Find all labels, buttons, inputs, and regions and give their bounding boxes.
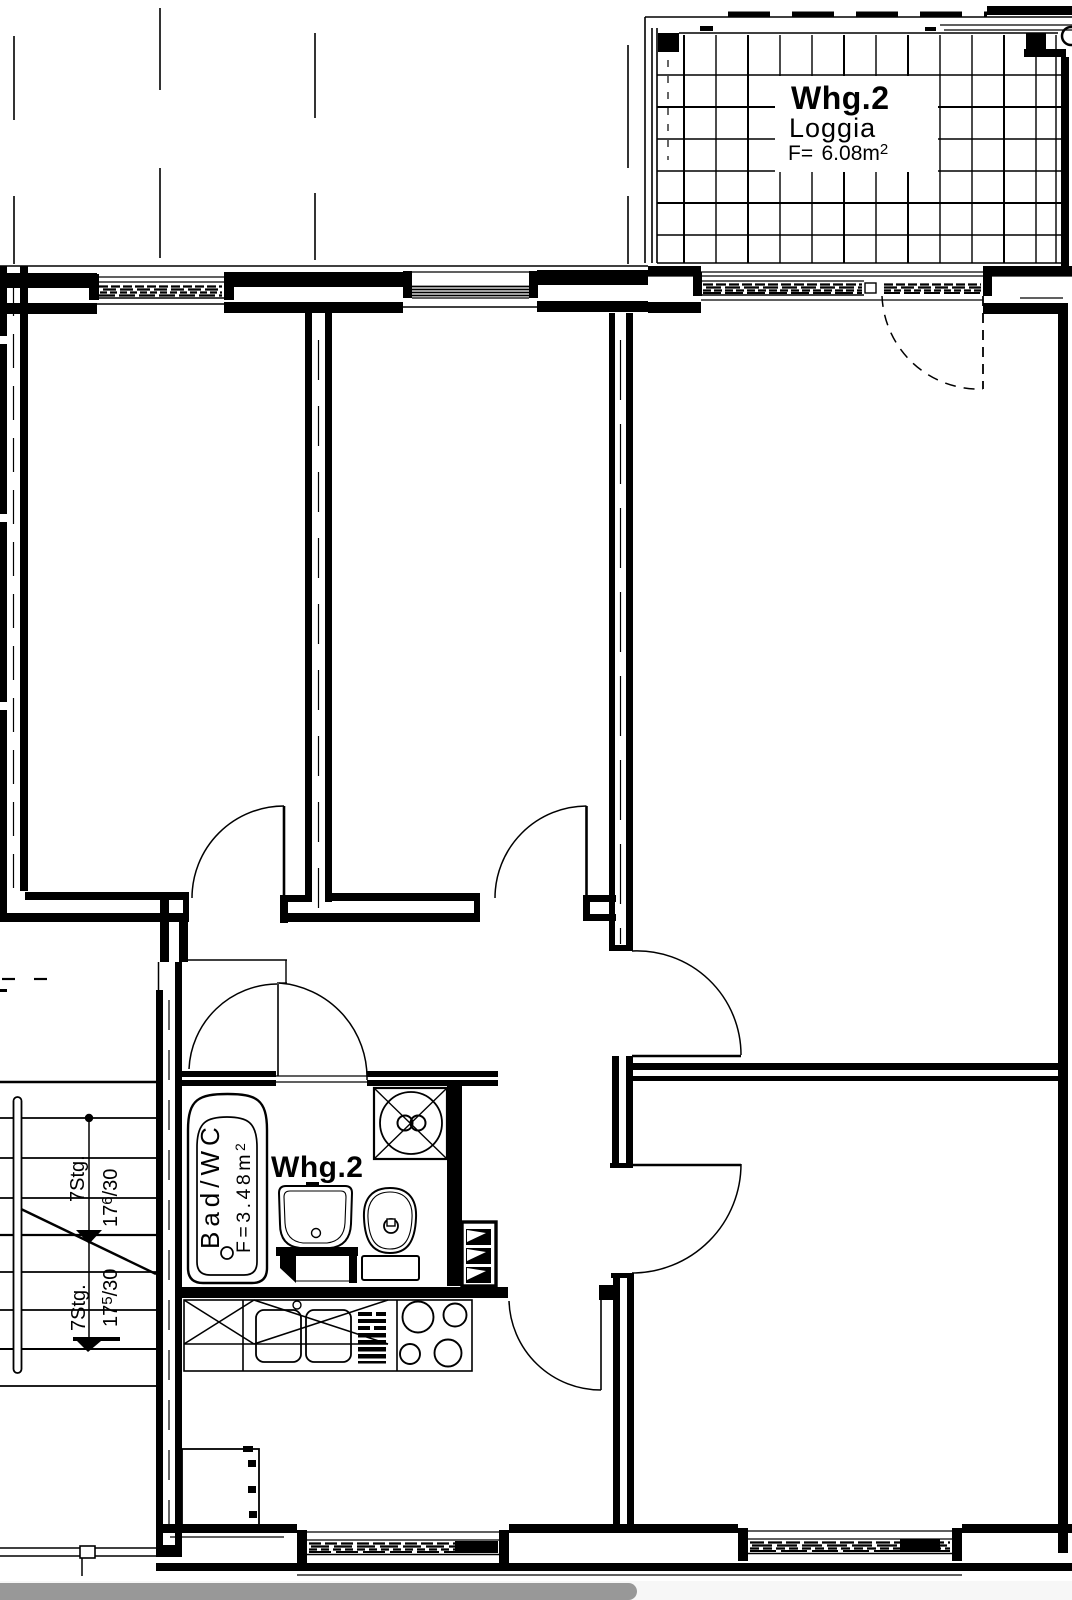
svg-text:F=3.48m2: F=3.48m2: [232, 1140, 255, 1253]
svg-text:Bad/WC: Bad/WC: [195, 1122, 225, 1249]
svg-text:Whg.2: Whg.2: [791, 80, 889, 116]
svg-text:7Stg.: 7Stg.: [68, 1284, 90, 1331]
svg-text:7Stg.: 7Stg.: [67, 1155, 89, 1202]
svg-text:Loggia: Loggia: [789, 113, 876, 143]
svg-text:Whg.2: Whg.2: [271, 1151, 364, 1184]
svg-text:F= 6.08m2: F= 6.08m2: [788, 141, 888, 165]
